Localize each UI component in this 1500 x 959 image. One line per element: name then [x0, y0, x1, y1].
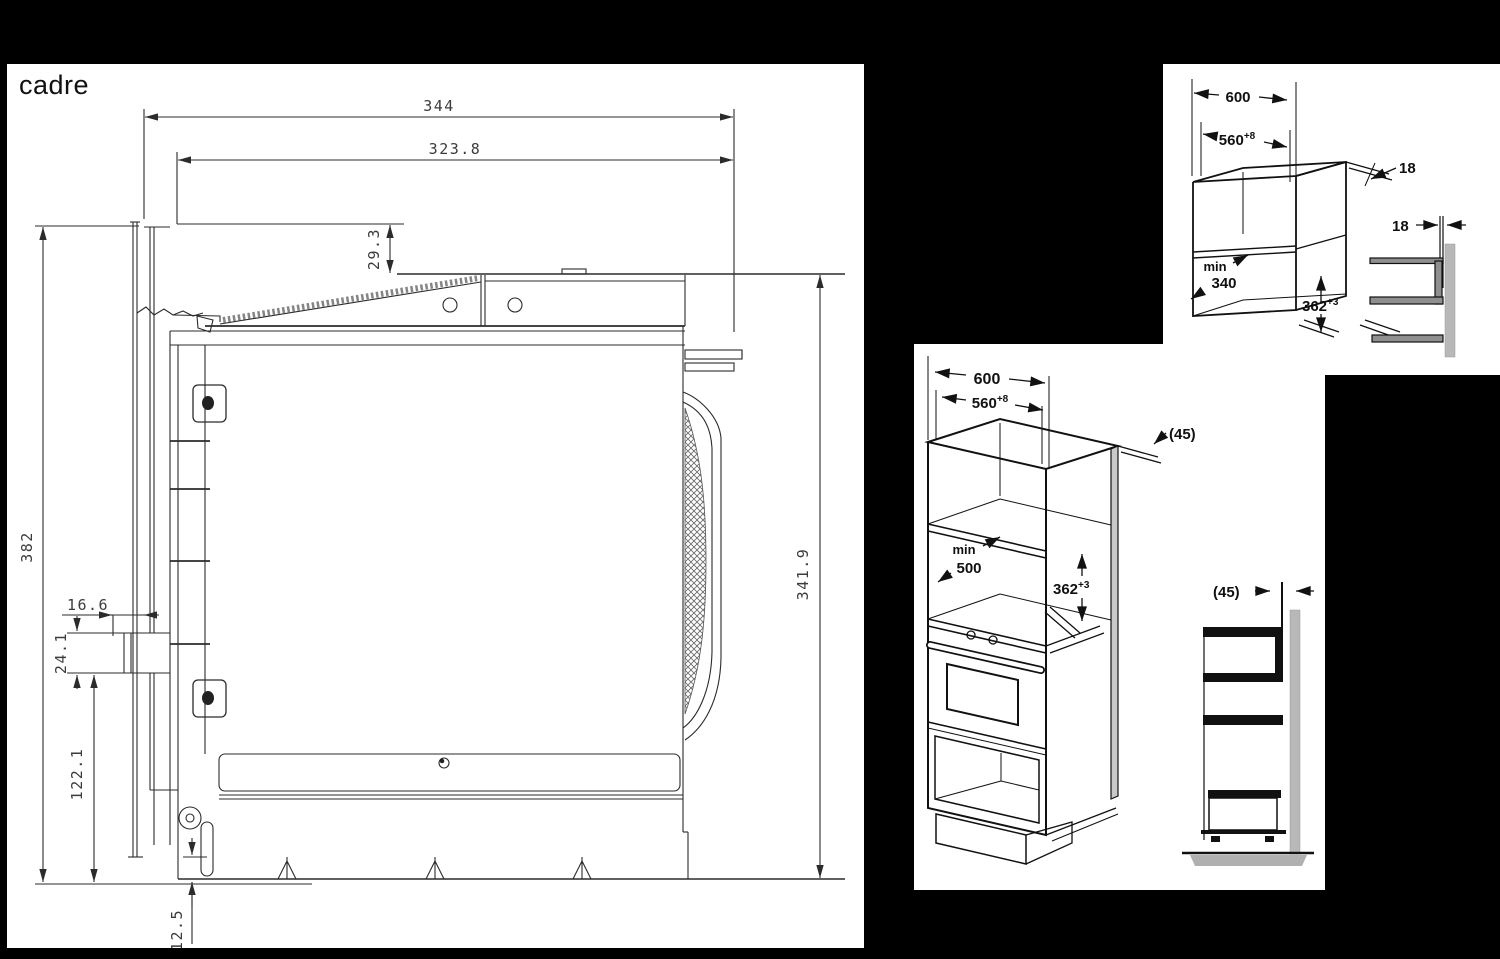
tallcab-top-gap-label: (45) [1169, 426, 1196, 443]
wall-cabinet-panel: 600 560+8 18 min 340 362+3 18 [1163, 64, 1500, 375]
tall-cabinet-panel: 600 560+8 (45) min 500 362+3 (45) [914, 344, 1325, 890]
tallcab-width-label: 600 [974, 371, 1001, 388]
dim-width-body-label: 323.8 [429, 140, 482, 158]
tallcab-inner-width-label: 560+8 [972, 394, 1009, 412]
wallcab-width-label: 600 [1225, 89, 1250, 106]
frame-drawing-title: cadre [19, 70, 89, 101]
wallcab-panel-side-label: 18 [1392, 218, 1409, 235]
wallcab-inner-width-label: 560+8 [1219, 131, 1256, 149]
dim-lower-section-label: 122.1 [68, 748, 86, 801]
frame-drawing-panel: cadre [7, 64, 864, 948]
wallcab-depth-value-label: 340 [1211, 275, 1236, 292]
wall-cabinet-installation-drawing: 600 560+8 18 min 340 362+3 18 [1163, 64, 1500, 375]
dim-base-lip-label: 12.5 [168, 909, 186, 948]
tallcab-niche-height-label: 362+3 [1053, 580, 1090, 598]
tallcab-wall-gap-label: (45) [1213, 584, 1240, 601]
wallcab-niche-height-label: 362+3 [1302, 297, 1339, 315]
dim-width-overall-label: 344 [423, 97, 455, 115]
tallcab-depth-value-label: 500 [956, 560, 981, 577]
wallcab-depth-min-label: min [1203, 259, 1226, 274]
dim-clip-height-label: 24.1 [52, 632, 70, 674]
wallcab-panel-top-label: 18 [1399, 160, 1416, 177]
tall-cabinet-installation-drawing: 600 560+8 (45) min 500 362+3 (45) [914, 344, 1325, 890]
dim-clip-offset-label: 16.6 [67, 596, 109, 614]
dim-bracket-drop-label: 29.3 [365, 228, 383, 270]
dim-height-body-label: 341.9 [794, 548, 812, 601]
frame-side-view-drawing: 344 323.8 29.3 382 341.9 16.6 24.1 122.1… [7, 64, 864, 948]
screenshot-root: cadre [0, 0, 1500, 959]
tallcab-depth-min-label: min [952, 542, 975, 557]
dim-height-overall-label: 382 [18, 531, 36, 563]
